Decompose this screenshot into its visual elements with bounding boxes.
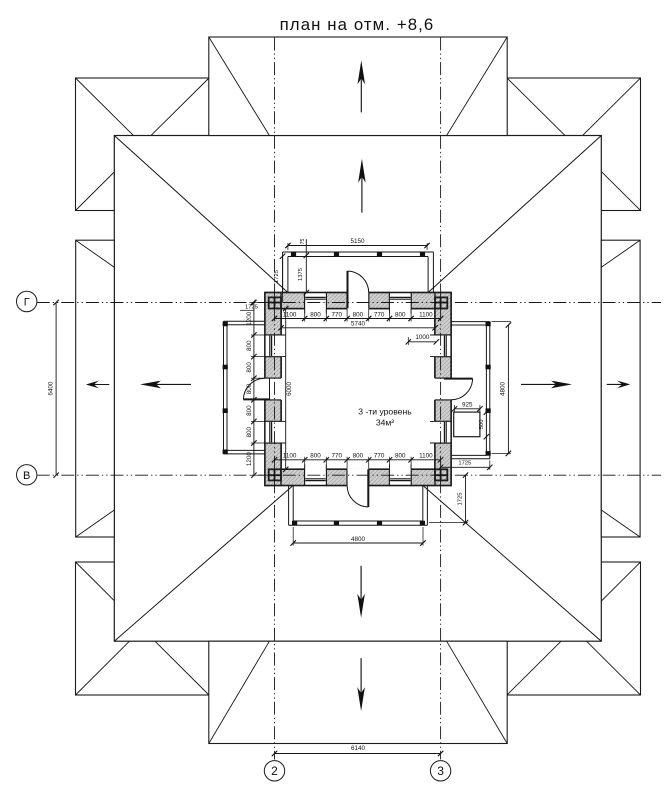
svg-text:1100: 1100 [419,311,433,318]
svg-text:1375: 1375 [298,268,304,281]
svg-text:6140: 6140 [351,745,366,752]
svg-text:800: 800 [310,452,321,459]
svg-text:925: 925 [462,401,473,408]
svg-text:1725: 1725 [245,305,258,311]
svg-text:1725: 1725 [458,461,471,467]
svg-text:800: 800 [246,362,253,373]
svg-text:800: 800 [353,452,364,459]
svg-text:5150: 5150 [350,238,365,245]
svg-text:1100: 1100 [283,311,297,318]
svg-text:500: 500 [479,420,485,430]
svg-text:800: 800 [395,452,406,459]
svg-text:план на отм. +8,6: план на отм. +8,6 [280,15,435,34]
svg-text:4800: 4800 [500,382,507,397]
svg-text:1200: 1200 [246,311,253,326]
svg-text:770: 770 [331,311,342,318]
svg-text:3 -ти уровень: 3 -ти уровень [358,406,412,416]
svg-text:800: 800 [246,340,253,351]
svg-text:770: 770 [331,452,342,459]
svg-text:1725: 1725 [274,270,280,283]
svg-text:770: 770 [374,311,385,318]
svg-text:5740: 5740 [351,321,366,328]
svg-text:800: 800 [246,426,253,437]
svg-text:1100: 1100 [283,452,297,459]
svg-text:1725: 1725 [457,493,463,506]
svg-text:2: 2 [271,764,278,778]
svg-text:800: 800 [246,405,253,416]
svg-text:1000: 1000 [415,334,430,341]
svg-text:800: 800 [246,383,253,394]
svg-text:800: 800 [353,311,364,318]
svg-text:1100: 1100 [419,452,433,459]
svg-text:6000: 6000 [286,382,293,397]
svg-text:770: 770 [374,452,385,459]
svg-text:34м²: 34м² [376,417,394,427]
svg-text:6400: 6400 [48,381,55,396]
svg-text:3: 3 [437,764,444,778]
svg-text:Г: Г [24,297,30,309]
svg-text:800: 800 [395,311,406,318]
svg-text:75: 75 [300,239,306,245]
svg-text:1200: 1200 [246,452,253,467]
svg-text:4800: 4800 [351,536,366,543]
svg-text:В: В [23,470,30,482]
svg-text:800: 800 [310,311,321,318]
